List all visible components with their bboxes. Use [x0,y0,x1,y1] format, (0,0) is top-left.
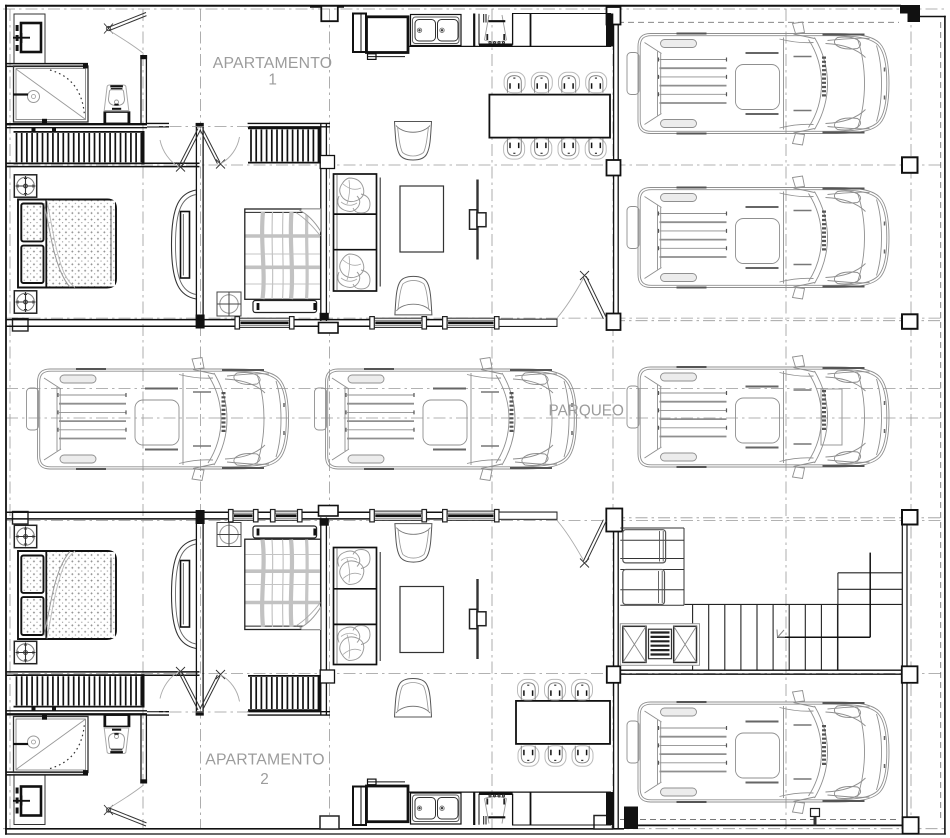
svg-text:APARTAMENTO: APARTAMENTO [213,55,333,72]
svg-text:APARTAMENTO: APARTAMENTO [205,752,325,769]
svg-text:1: 1 [268,72,277,89]
svg-text:PARQUEO: PARQUEO [549,402,624,419]
svg-text:2: 2 [260,771,269,788]
